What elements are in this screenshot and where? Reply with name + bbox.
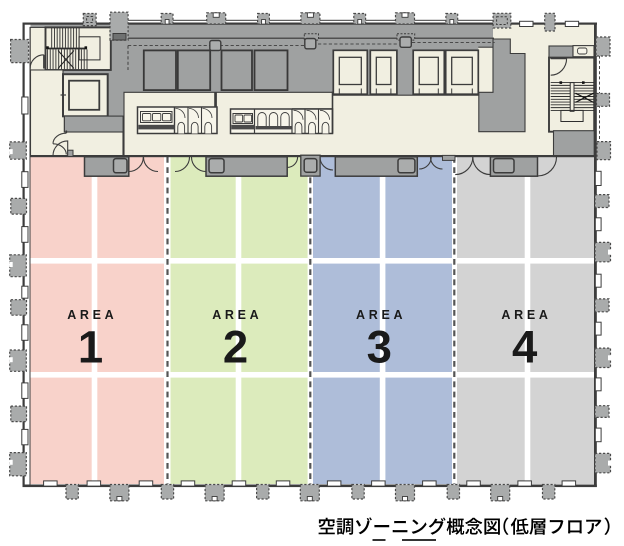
svg-text:AREA: AREA bbox=[67, 308, 117, 322]
svg-text:AREA: AREA bbox=[501, 308, 551, 322]
svg-text:1: 1 bbox=[78, 322, 103, 373]
svg-text:2: 2 bbox=[223, 322, 248, 373]
svg-text:AREA: AREA bbox=[212, 308, 262, 322]
svg-text:AREA: AREA bbox=[356, 308, 406, 322]
svg-text:3: 3 bbox=[367, 322, 392, 373]
svg-text:4: 4 bbox=[512, 322, 538, 373]
